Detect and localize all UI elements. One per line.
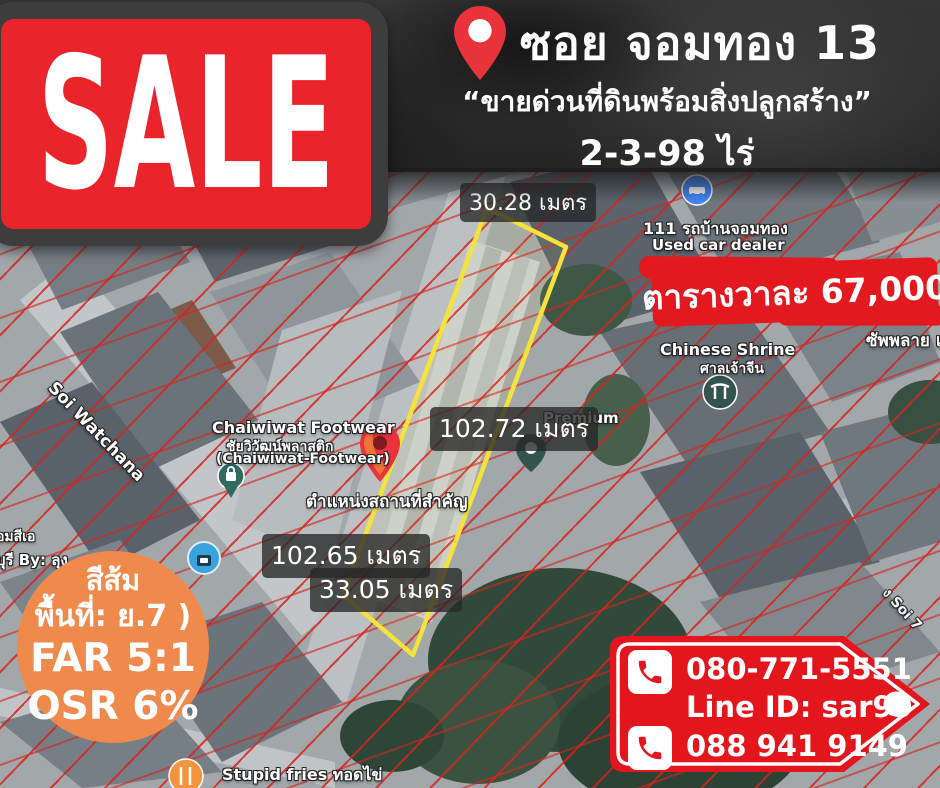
header-subtitle: “ขายด่วนที่ดินพร้อมสิ่งปลูกสร้าง” xyxy=(398,80,936,124)
measurement-south: 33.05 เมตร xyxy=(310,568,462,612)
contact-line-id: Line ID: sar99 xyxy=(686,690,913,724)
poi-label-supply: ซัพพลาย แอ xyxy=(866,327,940,354)
zoning-far: FAR 5:1 xyxy=(30,635,196,683)
price-banner-label: ตารางวาละ 67,000 xyxy=(641,260,940,324)
phone-icon xyxy=(628,726,672,770)
sale-banner: SALE xyxy=(0,2,388,246)
poi-label-used-car-en: Used car dealer xyxy=(652,236,785,254)
zoning-color: สีส้ม xyxy=(86,563,141,598)
footwear-shop-poi-icon xyxy=(216,462,246,498)
measurement-east: 102.72 เมตร xyxy=(430,407,598,451)
header-location-pin-icon xyxy=(454,6,506,80)
zoning-osr: OSR 6% xyxy=(27,683,198,731)
zoning-area: พื้นที่: ย.7 ) xyxy=(35,599,192,636)
sale-banner-inner: SALE xyxy=(1,19,371,229)
contact-tag: 080-771-5551 Line ID: sar99 088 941 9149 xyxy=(598,628,940,780)
phone-icon xyxy=(628,650,672,694)
sale-banner-label: SALE xyxy=(37,33,334,215)
restaurant-poi-icon xyxy=(168,758,204,788)
zoning-badge: สีส้ม พื้นที่: ย.7 ) FAR 5:1 OSR 6% xyxy=(17,551,209,743)
price-banner: ตารางวาละ 67,000 xyxy=(651,257,939,327)
poi-label-chaiwiwat-en: Chaiwiwat Footwear xyxy=(212,418,395,437)
header-content: ซอย จอมทอง 13 “ขายด่วนที่ดินพร้อมสิ่งปลู… xyxy=(398,6,936,181)
poi-label-shrine-en: Chinese Shrine xyxy=(660,340,795,359)
contact-phone-1: 080-771-5551 xyxy=(686,652,912,686)
contact-phone-2: 088 941 9149 xyxy=(686,729,908,763)
poi-label-chaiwiwat-sub: (Chaiwiwat-Footwear) xyxy=(216,451,390,467)
pin-caption: ตำแหน่งสถานที่สำคัญ xyxy=(306,488,468,515)
shop-lock-poi-icon xyxy=(186,541,222,581)
poi-label-left-1: อมสีเอ xyxy=(0,526,35,548)
poi-label-shrine-th: ศาลเจ้าจีน xyxy=(700,358,764,380)
poi-label-fries: Stupid fries ทอดไข่ xyxy=(222,763,382,788)
poster-root: Soi Watchana Chaiwiwat Footwear ชัยวิวัฒ… xyxy=(0,0,940,788)
header-title: ซอย จอมทอง 13 xyxy=(520,7,880,80)
